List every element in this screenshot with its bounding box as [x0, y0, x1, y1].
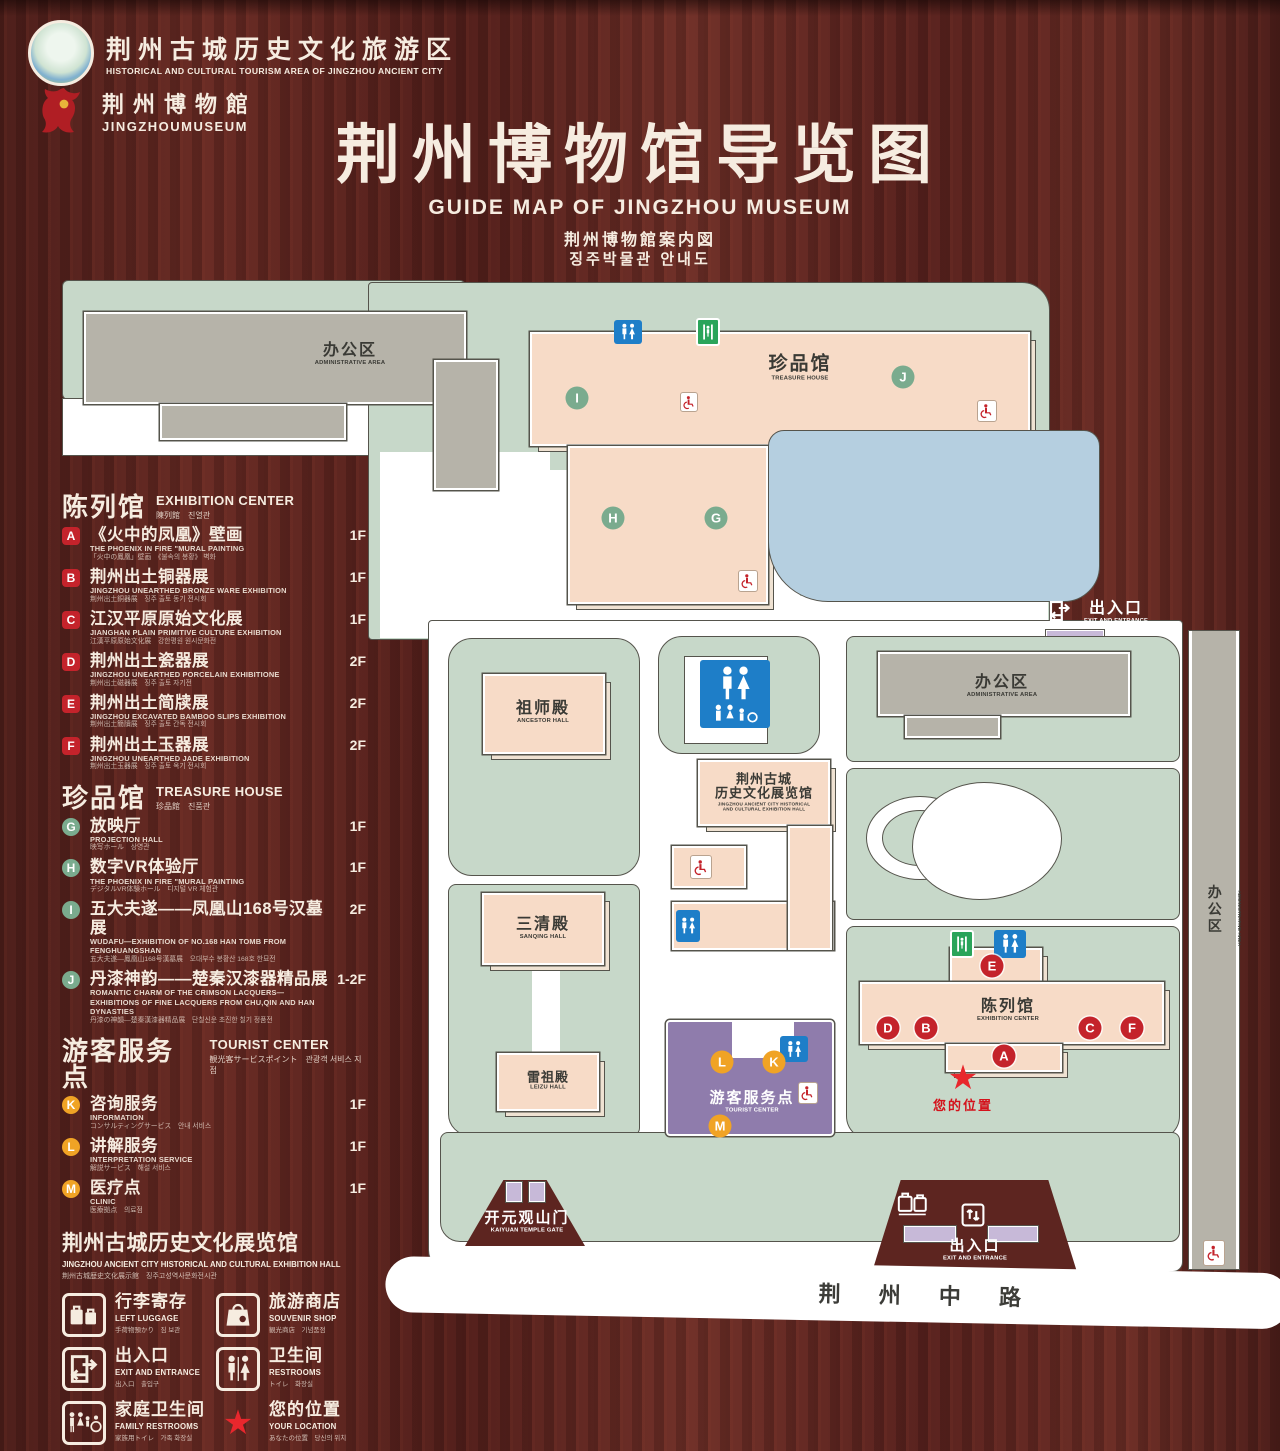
item-sub: 荆州出土簡牘展 징주 출토 간독 전시회: [90, 721, 330, 729]
legend-item-f: F 荆州出土玉器展 JINGZHOU UNEARTHED JADE EXHIBI…: [62, 736, 366, 772]
exit-icon: [1048, 598, 1072, 624]
section-title-zh: 陈列馆: [62, 494, 146, 520]
item-zh: 数字VR体验厅: [90, 858, 330, 876]
item-floor: 2F: [350, 737, 366, 753]
item-floor: 1F: [350, 818, 366, 834]
symbol-sub: 出入口 출입구: [115, 1378, 200, 1388]
tourism-area-logo-text: 荆州古城历史文化旅游区 HISTORICAL AND CULTURAL TOUR…: [106, 30, 458, 76]
tourism-area-name-en: HISTORICAL AND CULTURAL TOURISM AREA OF …: [106, 66, 458, 76]
restroom-icon: [994, 930, 1026, 958]
section-title-en: EXHIBITION CENTER: [156, 494, 294, 507]
item-en: ROMANTIC CHARM OF THE CRIMSON LACQUERS—E…: [90, 988, 330, 1017]
your-location-label: 您的位置: [933, 1099, 993, 1113]
symbol-text: 旅游商店 SOUVENIR SHOP 観光商店 기념품점: [269, 1293, 341, 1334]
map-marker-a: A: [993, 1045, 1016, 1068]
item-zh: 咨询服务: [90, 1095, 330, 1113]
your-location-zh: 您的位置: [933, 1099, 993, 1113]
accessible-elevator-icon: [1203, 1240, 1225, 1266]
kaiyuan-gate-right: [529, 1182, 545, 1202]
history-en2: AND CULTURAL EXHIBITION HALL: [715, 806, 813, 811]
item-zh: 荆州出土简牍展: [90, 694, 330, 712]
exit-right-en: EXIT AND ENTRANCE: [1084, 618, 1148, 624]
phoenix-bird-icon: [40, 84, 88, 136]
section-title-side: EXHIBITION CENTER 陳列館 진열관: [156, 494, 294, 521]
item-floor: 1F: [350, 1180, 366, 1196]
badge-a: A: [62, 527, 80, 545]
tourism-area-logo: 荆州古城历史文化旅游区 HISTORICAL AND CULTURAL TOUR…: [28, 20, 458, 86]
map-marker-f: F: [1121, 1017, 1144, 1040]
item-zh: 丹漆神韵——楚秦汉漆器精品展: [90, 970, 330, 988]
restroom-icon: [709, 665, 761, 703]
history-zh1: 荆州古城: [715, 773, 813, 787]
tourism-area-name-zh: 荆州古城历史文化旅游区: [106, 30, 458, 66]
museum-logo: 荆州博物館 JINGZHOUMUSEUM: [40, 84, 257, 136]
legend-history-hall-note: 荆州古城历史文化展览馆 JINGZHOU ANCIENT CITY HISTOR…: [62, 1227, 366, 1281]
symbol-zh: 出入口: [115, 1347, 200, 1366]
page-title-zh: 荆州博物馆导览图: [280, 104, 1000, 196]
elevator-icon: [696, 318, 720, 346]
legend-item-b: B 荆州出土铜器展 JINGZHOU UNEARTHED BRONZE WARE…: [62, 568, 366, 604]
badge-c: C: [62, 611, 80, 629]
item-sub: 江漢平原原始文化展 강한평원 원시문화전: [90, 638, 330, 646]
exhibition-center-label: 陈列馆 EXHIBITION CENTER: [977, 998, 1039, 1022]
symbol-sub: 観光商店 기념품점: [269, 1324, 341, 1334]
item-en: INTERPRETATION SERVICE: [90, 1155, 330, 1165]
souvenir-shop-icon: [216, 1293, 260, 1337]
admin-top-label: 办公区 ADMINISTRATIVE AREA: [315, 342, 385, 366]
restroom-icon: [614, 320, 642, 344]
admin-strip-zh: 办公区: [1206, 885, 1221, 936]
admin-top-building: [84, 312, 466, 404]
restroom-family-sign: [700, 660, 770, 728]
symbol-text: 出入口 EXIT AND ENTRANCE 出入口 출입구: [115, 1347, 200, 1388]
map-marker-m: M: [709, 1115, 732, 1138]
note-zh: 荆州古城历史文化展览馆: [62, 1227, 366, 1257]
leizu-hall-label: 雷祖殿 LEIZU HALL: [527, 1071, 569, 1092]
road-label: 荆 州 中 路: [818, 1276, 1037, 1312]
item-floor: 1F: [350, 611, 366, 627]
ancestor-en: ANCESTOR HALL: [516, 718, 570, 724]
page-title-ko: 징주박물관 안내도: [280, 248, 1000, 269]
left-luggage-icon: [62, 1293, 106, 1337]
symbol-en: YOUR LOCATION: [269, 1422, 346, 1431]
admin-top-building-step: [160, 404, 346, 440]
legend-item-a: A 《火中的凤凰》壁画 THE PHOENIX IN FIRE "MURAL P…: [62, 526, 366, 562]
legend-panel: 陈列馆 EXHIBITION CENTER 陳列館 진열관 A 《火中的凤凰》壁…: [62, 494, 366, 1451]
admin-right-en: ADMINISTRATIVE AREA: [967, 692, 1037, 698]
exit-icon: [62, 1347, 106, 1391]
map-marker-i: I: [566, 387, 589, 410]
item-en: JINGZHOU UNEARTHED JADE EXHIBITION: [90, 754, 330, 764]
treasure-house-building-main: [530, 332, 1030, 446]
map-marker-k: K: [763, 1051, 786, 1074]
badge-l: L: [62, 1138, 80, 1156]
badge-k: K: [62, 1096, 80, 1114]
kaiyuan-gate-left: [506, 1182, 522, 1202]
symbol-sub: あなたの位置 당신의 위치: [269, 1432, 346, 1442]
symbol-text: 您的位置 YOUR LOCATION あなたの位置 당신의 위치: [269, 1401, 346, 1442]
history-zh2: 历史文化展览馆: [715, 787, 813, 801]
item-en: INFORMATION: [90, 1113, 330, 1123]
item-en: JINGZHOU UNEARTHED BRONZE WARE EXHIBITIO…: [90, 586, 330, 596]
symbol-souvenir-shop: 旅游商店 SOUVENIR SHOP 観光商店 기념품점: [216, 1293, 366, 1337]
symbol-left-luggage: 行李寄存 LEFT LUGGAGE 手荷物預かり 짐 보관: [62, 1293, 216, 1337]
exit-right-label: 出入口 EXIT AND ENTRANCE: [1084, 600, 1148, 624]
map-marker-e: E: [981, 955, 1004, 978]
item-floor: 1F: [350, 527, 366, 543]
accessible-elevator-icon: [680, 392, 698, 412]
exit-icon: [960, 1202, 986, 1228]
legend-item-k: K 咨询服务 INFORMATION コンサルティングサービス 안내 서비스 1…: [62, 1095, 366, 1131]
admin-strip-label: 办公区 ADMINISTRATIVE AREA: [1206, 885, 1221, 936]
section-title-zh: 珍品馆: [62, 785, 146, 811]
treasure-label: 珍品馆 TREASURE HOUSE: [768, 354, 831, 381]
museum-logo-text: 荆州博物館 JINGZHOUMUSEUM: [102, 87, 257, 134]
restroom-icon: [216, 1347, 260, 1391]
badge-e: E: [62, 695, 80, 713]
item-en: JINGZHOU UNEARTHED PORCELAIN EXHIBITIONE: [90, 670, 330, 680]
admin-top-zh: 办公区: [315, 342, 385, 360]
sanqing-en: SANQING HALL: [516, 934, 570, 940]
admin-right-building-step: [905, 716, 1000, 738]
symbol-zh: 行李寄存: [115, 1293, 187, 1312]
item-zh: 江汉平原原始文化展: [90, 610, 330, 628]
item-floor: 1F: [350, 1138, 366, 1154]
legend-item-l: L 讲解服务 INTERPRETATION SERVICE 解説サービス 해설 …: [62, 1137, 366, 1173]
restroom-icon: [676, 910, 700, 942]
symbol-en: RESTROOMS: [269, 1368, 323, 1377]
item-floor: 1F: [350, 569, 366, 585]
note-en: JINGZHOU ANCIENT CITY HISTORICAL AND CUL…: [62, 1260, 366, 1269]
admin-strip-en: ADMINISTRATIVE AREA: [1236, 891, 1241, 947]
exit-bottom-label: 出入口 EXIT AND ENTRANCE: [943, 1239, 1007, 1262]
badge-j: J: [62, 971, 80, 989]
item-sub: コンサルティングサービス 안내 서비스: [90, 1123, 330, 1131]
section-title-sub: 観光客サービスポイント 관광객 서비스 지점: [210, 1054, 366, 1076]
map-marker-j: J: [892, 366, 915, 389]
section-title-en: TREASURE HOUSE: [156, 785, 283, 798]
badge-i: I: [62, 901, 80, 919]
item-zh: 讲解服务: [90, 1137, 330, 1155]
item-sub: 荆州出土磁器展 징주 출토 자기전: [90, 680, 330, 688]
item-sub: 映写ホール 상영관: [90, 844, 330, 852]
admin-top-en: ADMINISTRATIVE AREA: [315, 360, 385, 366]
symbol-zh: 您的位置: [269, 1401, 346, 1420]
item-zh: 五大夫遂——凤凰山168号汉墓展: [90, 900, 330, 936]
symbol-restrooms: 卫生间 RESTROOMS トイレ 화장실: [216, 1347, 366, 1391]
item-en: JINGZHOU EXCAVATED BAMBOO SLIPS EXHIBITI…: [90, 712, 330, 722]
accessible-elevator-icon: [977, 400, 997, 422]
map-marker-g: G: [705, 507, 728, 530]
item-zh: 《火中的凤凰》壁画: [90, 526, 330, 544]
history-hall-label: 荆州古城 历史文化展览馆 JINGZHOU ANCIENT CITY HISTO…: [715, 773, 813, 812]
gate-en: KAIYUAN TEMPLE GATE: [484, 1227, 569, 1233]
item-floor: 1F: [350, 859, 366, 875]
symbol-zh: 家庭卫生间: [115, 1401, 205, 1420]
item-en: THE PHOENIX IN FIRE "MURAL PAINTING: [90, 544, 330, 554]
item-sub: 五大夫遂—鳳凰山168号漢墓展 오대부수 봉황산 168호 한묘전: [90, 956, 330, 964]
badge-d: D: [62, 653, 80, 671]
badge-m: M: [62, 1180, 80, 1198]
your-location-star-icon: ★: [948, 1061, 978, 1095]
family-restroom-icon: [709, 704, 761, 724]
accessible-elevator-icon: [738, 570, 758, 592]
exit-right-zh: 出入口: [1084, 600, 1148, 618]
legend-section-exhibition-heading: 陈列馆 EXHIBITION CENTER 陳列館 진열관: [62, 494, 366, 521]
section-title-side: TREASURE HOUSE 珍品館 진품관: [156, 785, 283, 812]
item-zh: 放映厅: [90, 817, 330, 835]
symbol-en: SOUVENIR SHOP: [269, 1314, 341, 1323]
legend-item-d: D 荆州出土瓷器展 JINGZHOU UNEARTHED PORCELAIN E…: [62, 652, 366, 688]
legend-item-m: M 医疗点 CLINIC 医療拠点 의료점 1F: [62, 1179, 366, 1215]
page-title-en: GUIDE MAP OF JINGZHOU MUSEUM: [280, 196, 1000, 220]
legend-item-g: G 放映厅 PROJECTION HALL 映写ホール 상영관 1F: [62, 817, 366, 853]
symbol-en: FAMILY RESTROOMS: [115, 1422, 205, 1431]
section-title-zh: 游客服务点: [62, 1038, 200, 1090]
accessible-elevator-icon: [798, 1082, 818, 1104]
legend-item-j: J 丹漆神韵——楚秦汉漆器精品展 ROMANTIC CHARM OF THE C…: [62, 970, 366, 1025]
museum-name-zh: 荆州博物館: [102, 87, 257, 119]
history-en1: JINGZHOU ANCIENT CITY HISTORICAL: [715, 801, 813, 806]
item-en: JIANGHAN PLAIN PRIMITIVE CULTURE EXHIBIT…: [90, 628, 330, 638]
section-title-sub: 陳列館 진열관: [156, 510, 294, 521]
item-en: CLINIC: [90, 1197, 330, 1207]
symbol-sub: トイレ 화장실: [269, 1378, 323, 1388]
item-sub: 「火中の鳳凰」壁画 《불속의 봉황》 벽화: [90, 554, 330, 562]
history-hall-corridor: [788, 826, 832, 950]
legend-symbol-grid: 行李寄存 LEFT LUGGAGE 手荷物預かり 짐 보관 旅游商店 SOUVE…: [62, 1293, 366, 1451]
leizu-zh: 雷祖殿: [527, 1071, 569, 1085]
museum-name-en: JINGZHOUMUSEUM: [102, 119, 257, 134]
item-floor: 2F: [350, 653, 366, 669]
symbol-en: LEFT LUGGAGE: [115, 1314, 187, 1323]
symbol-zh: 旅游商店: [269, 1293, 341, 1312]
guide-map-poster: 荆州古城历史文化旅游区 HISTORICAL AND CULTURAL TOUR…: [0, 0, 1280, 1451]
symbol-text: 家庭卫生间 FAMILY RESTROOMS 家族用トイレ 가족 화장실: [115, 1401, 205, 1442]
symbol-en: EXIT AND ENTRANCE: [115, 1368, 200, 1377]
map-marker-b: B: [915, 1017, 938, 1040]
note-sub: 荆州古城歴史文化展示館 징주고성역사문화전시관: [62, 1271, 366, 1281]
exit-bottom-zh: 出入口: [943, 1239, 1007, 1256]
tourist-en: TOURIST CENTER: [709, 1107, 794, 1113]
ancestor-hall-label: 祖师殿 ANCESTOR HALL: [516, 700, 570, 724]
lake: [768, 430, 1100, 602]
your-location-star-icon: ★: [216, 1401, 260, 1445]
section-title-sub: 珍品館 진품관: [156, 801, 283, 812]
item-en: WUDAFU—EXHIBITION OF NO.168 HAN TOMB FRO…: [90, 937, 330, 956]
gate-zh: 开元观山门: [484, 1211, 569, 1228]
exhibition-en: EXHIBITION CENTER: [977, 1016, 1039, 1022]
family-restroom-icon: [62, 1401, 106, 1445]
map-marker-h: H: [602, 507, 625, 530]
item-floor: 1F: [350, 1096, 366, 1112]
map-marker-c: C: [1079, 1017, 1102, 1040]
item-floor: 2F: [350, 695, 366, 711]
legend-item-h: H 数字VR体验厅 THE PHOENIX IN FIRE "MURAL PAI…: [62, 858, 366, 894]
admin-right-label: 办公区 ADMINISTRATIVE AREA: [967, 674, 1037, 698]
item-zh: 荆州出土玉器展: [90, 736, 330, 754]
badge-h: H: [62, 859, 80, 877]
courtyard-path: [532, 952, 560, 1056]
ancestor-zh: 祖师殿: [516, 700, 570, 718]
item-zh: 荆州出土瓷器展: [90, 652, 330, 670]
badge-f: F: [62, 737, 80, 755]
left-luggage-icon: [894, 1182, 932, 1220]
sanqing-hall-label: 三清殿 SANQING HALL: [516, 916, 570, 940]
legend-section-tourist-heading: 游客服务点 TOURIST CENTER 観光客サービスポイント 관광객 서비스…: [62, 1038, 366, 1090]
kaiyuan-gate-label: 开元观山门 KAIYUAN TEMPLE GATE: [484, 1211, 569, 1234]
admin-strip-building: [1188, 630, 1240, 1270]
legend-item-e: E 荆州出土简牍展 JINGZHOU EXCAVATED BAMBOO SLIP…: [62, 694, 366, 730]
admin-top-building-wing: [434, 360, 498, 490]
item-sub: 丹漆の神韻—楚秦漢漆器精品展 단칠신운 초진한 칠기 정품전: [90, 1017, 330, 1025]
admin-right-zh: 办公区: [967, 674, 1037, 692]
item-sub: 解説サービス 해설 서비스: [90, 1165, 330, 1173]
item-en: THE PHOENIX IN FIRE "MURAL PAINTING: [90, 877, 330, 887]
item-sub: 医療拠点 의료점: [90, 1207, 330, 1215]
item-sub: 荆州出土玉器展 징주 출토 옥기 전시회: [90, 763, 330, 771]
badge-b: B: [62, 569, 80, 587]
tourist-center-label: 游客服务点 TOURIST CENTER: [709, 1091, 794, 1114]
symbol-family-restrooms: 家庭卫生间 FAMILY RESTROOMS 家族用トイレ 가족 화장실: [62, 1401, 216, 1445]
sanqing-zh: 三清殿: [516, 916, 570, 934]
exit-bottom-en: EXIT AND ENTRANCE: [943, 1255, 1007, 1261]
leizu-en: LEIZU HALL: [527, 1085, 569, 1091]
item-en: PROJECTION HALL: [90, 835, 330, 845]
section-title-en: TOURIST CENTER: [210, 1038, 366, 1051]
symbol-text: 卫生间 RESTROOMS トイレ 화장실: [269, 1347, 323, 1388]
symbol-sub: 家族用トイレ 가족 화장실: [115, 1432, 205, 1442]
elevator-icon: [950, 930, 974, 958]
section-title-side: TOURIST CENTER 観光客サービスポイント 관광객 서비스 지점: [210, 1038, 366, 1076]
map-marker-d: D: [877, 1017, 900, 1040]
badge-g: G: [62, 818, 80, 836]
item-floor: 2F: [350, 901, 366, 917]
treasure-zh: 珍品馆: [768, 354, 831, 375]
tourism-area-logo-icon: [28, 20, 94, 86]
item-sub: デジタルVR体験ホール 디지털 VR 체험관: [90, 886, 330, 894]
item-sub: 荆州出土銅器展 징주 출토 동기 전시회: [90, 596, 330, 604]
item-zh: 医疗点: [90, 1179, 330, 1197]
item-zh: 荆州出土铜器展: [90, 568, 330, 586]
legend-item-i: I 五大夫遂——凤凰山168号汉墓展 WUDAFU—EXHIBITION OF …: [62, 900, 366, 964]
symbol-your-location: ★ 您的位置 YOUR LOCATION あなたの位置 당신의 위치: [216, 1401, 366, 1445]
accessible-elevator-icon: [690, 855, 712, 879]
legend-item-c: C 江汉平原原始文化展 JIANGHAN PLAIN PRIMITIVE CUL…: [62, 610, 366, 646]
legend-section-treasure-heading: 珍品馆 TREASURE HOUSE 珍品館 진품관: [62, 785, 366, 812]
symbol-zh: 卫生间: [269, 1347, 323, 1366]
page-title-ja: 荆州博物館案内図: [280, 226, 1000, 250]
item-floor: 1-2F: [337, 971, 366, 987]
map-marker-l: L: [711, 1051, 734, 1074]
tourist-zh: 游客服务点: [709, 1091, 794, 1108]
exhibition-zh: 陈列馆: [977, 998, 1039, 1016]
treasure-en: TREASURE HOUSE: [768, 375, 831, 381]
symbol-text: 行李寄存 LEFT LUGGAGE 手荷物預かり 짐 보관: [115, 1293, 187, 1334]
symbol-sub: 手荷物預かり 짐 보관: [115, 1324, 187, 1334]
symbol-exit-entrance: 出入口 EXIT AND ENTRANCE 出入口 출입구: [62, 1347, 216, 1391]
